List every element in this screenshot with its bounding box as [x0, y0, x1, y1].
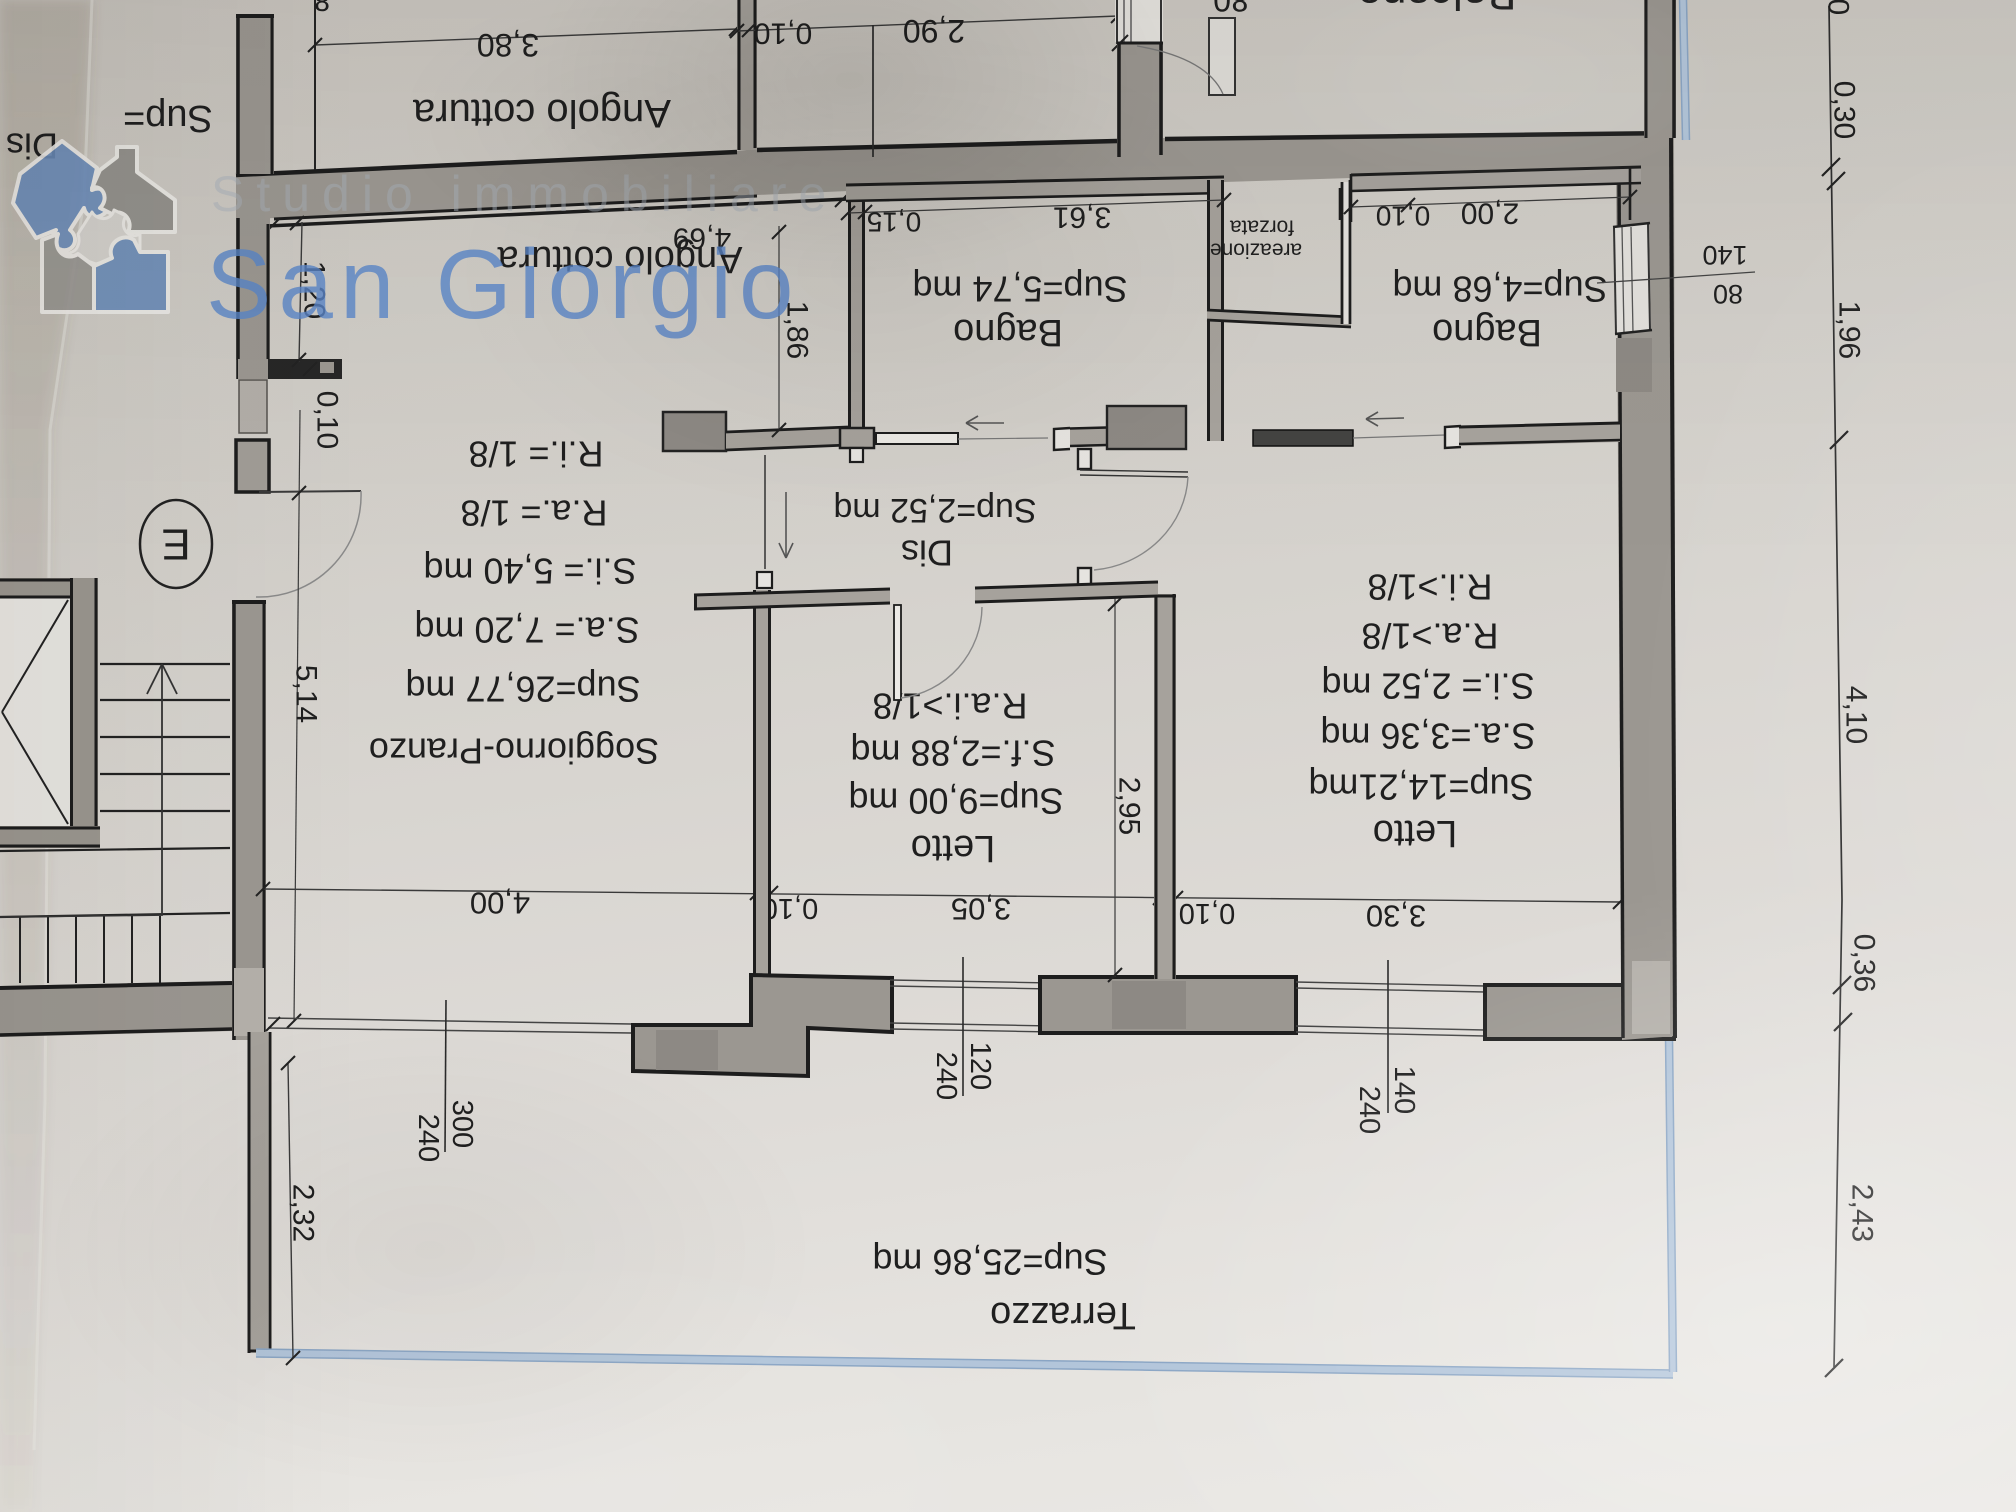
svg-text:2,43: 2,43 [1846, 1184, 1879, 1242]
svg-text:2,90: 2,90 [903, 13, 965, 49]
svg-text:Balcone: Balcone [1357, 0, 1516, 19]
svg-text:120: 120 [964, 1042, 996, 1090]
svg-text:0,10: 0,10 [1822, 0, 1855, 15]
svg-text:Studio immobiliare: Studio immobiliare [211, 166, 838, 222]
svg-text:80: 80 [1213, 0, 1249, 18]
svg-text:300: 300 [446, 1100, 478, 1148]
svg-text:Sup=5,74 mq: Sup=5,74 mq [912, 269, 1127, 310]
svg-text:Sup=: Sup= [123, 97, 213, 139]
svg-text:Soggiorno-Pranzo: Soggiorno-Pranzo [369, 731, 659, 772]
svg-text:0,10: 0,10 [1376, 201, 1431, 232]
svg-text:80: 80 [1713, 279, 1743, 309]
svg-text:0,30: 0,30 [1828, 81, 1861, 139]
svg-text:Sup=9,00 mq: Sup=9,00 mq [848, 781, 1063, 822]
svg-text:140: 140 [1702, 240, 1747, 270]
svg-text:Bagno: Bagno [1432, 311, 1542, 353]
svg-text:R.i.>1/8: R.i.>1/8 [1367, 567, 1492, 608]
svg-text:0,36: 0,36 [1848, 934, 1881, 992]
svg-text:240: 240 [412, 1114, 444, 1162]
svg-text:1,96: 1,96 [1833, 301, 1866, 359]
svg-text:3,61: 3,61 [1053, 201, 1111, 234]
svg-text:2,32: 2,32 [287, 1184, 320, 1242]
svg-text:5,14: 5,14 [290, 665, 323, 723]
svg-text:forzata: forzata [1230, 216, 1295, 239]
svg-text:240: 240 [930, 1052, 962, 1100]
svg-text:Letto: Letto [1373, 812, 1458, 854]
svg-text:S.a.= 7,20 mq: S.a.= 7,20 mq [414, 610, 639, 651]
svg-text:140: 140 [1388, 1066, 1420, 1114]
svg-text:R.a.>1/8: R.a.>1/8 [1361, 616, 1498, 657]
svg-text:2,95: 2,95 [1113, 777, 1146, 835]
svg-text:S.i.= 2,52 mq: S.i.= 2,52 mq [1321, 666, 1534, 707]
svg-text:3,30: 3,30 [1366, 899, 1426, 934]
svg-text:Sup=4,68 mq: Sup=4,68 mq [1392, 269, 1607, 310]
svg-text:Bagno: Bagno [953, 311, 1063, 353]
svg-text:Angolo cottura: Angolo cottura [412, 91, 671, 135]
svg-text:4,10: 4,10 [1840, 686, 1873, 744]
svg-text:E: E [161, 520, 190, 569]
svg-text:S.i.= 5,40 mq: S.i.= 5,40 mq [423, 551, 636, 592]
svg-text:S.a.=3,36 mq: S.a.=3,36 mq [1320, 716, 1535, 757]
svg-text:S.f.=2,88 mq: S.f.=2,88 mq [850, 733, 1055, 774]
svg-text:Terrazzo: Terrazzo [990, 1294, 1136, 1336]
svg-text:Sup=25,86 mq: Sup=25,86 mq [872, 1242, 1107, 1283]
svg-text:R.a.= 1/8: R.a.= 1/8 [460, 493, 607, 534]
svg-text:0,10: 0,10 [311, 391, 344, 449]
svg-text:0,10: 0,10 [1179, 897, 1235, 929]
svg-text:0,15: 0,15 [867, 207, 922, 238]
svg-text:4,00: 4,00 [470, 886, 530, 921]
svg-text:Sup=2,52 mq: Sup=2,52 mq [833, 491, 1036, 529]
svg-text:Dis: Dis [901, 533, 953, 574]
svg-text:San Giorgio: San Giorgio [206, 229, 801, 339]
svg-text:240: 240 [1353, 1086, 1385, 1134]
svg-text:R.i.= 1/8: R.i.= 1/8 [468, 434, 603, 475]
svg-text:Letto: Letto [911, 827, 996, 869]
svg-text:8: 8 [314, 0, 331, 17]
svg-text:Sup=26,77 mq: Sup=26,77 mq [405, 669, 640, 710]
svg-text:2,00: 2,00 [1461, 197, 1519, 230]
svg-text:Sup=14,21mq: Sup=14,21mq [1308, 767, 1533, 808]
svg-text:3,80: 3,80 [477, 27, 539, 63]
svg-text:areazione: areazione [1210, 239, 1302, 262]
svg-text:0,10: 0,10 [754, 17, 812, 50]
svg-text:3,05: 3,05 [951, 892, 1011, 927]
